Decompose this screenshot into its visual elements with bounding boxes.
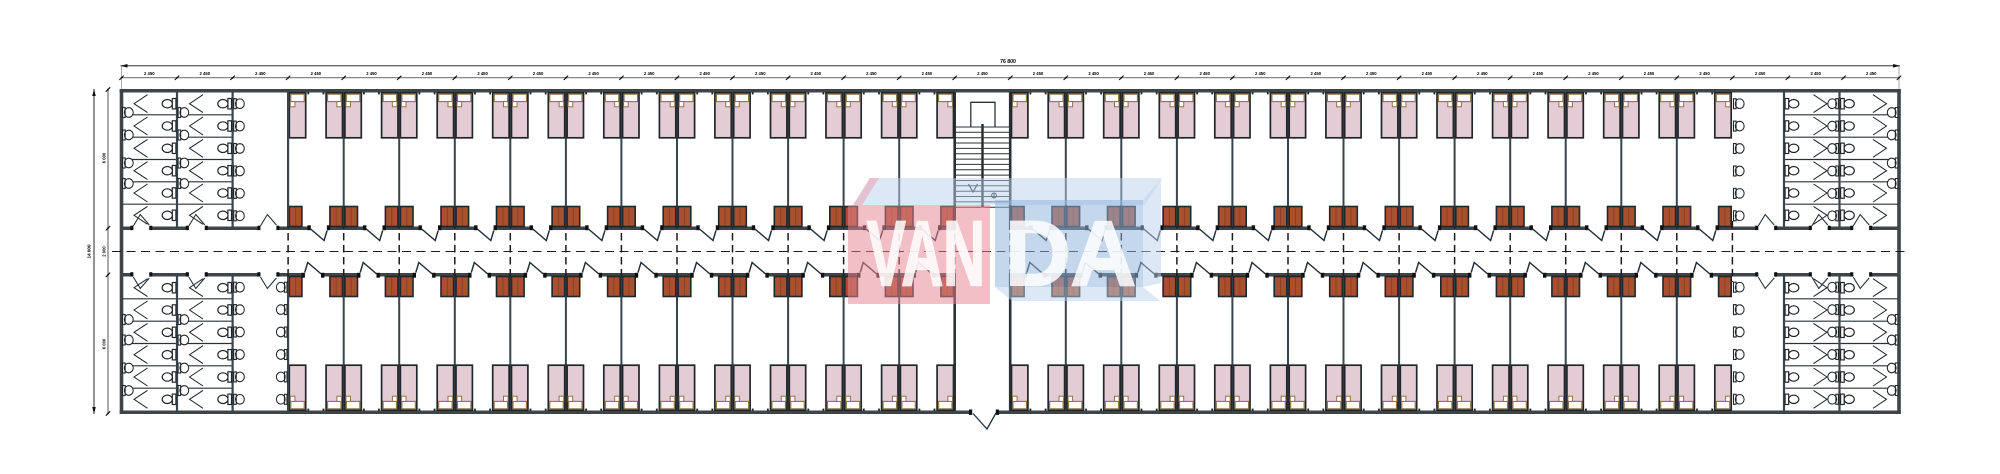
svg-text:2 450: 2 450 <box>1866 71 1877 76</box>
svg-text:2 450: 2 450 <box>144 71 155 76</box>
svg-text:2 450: 2 450 <box>1810 71 1821 76</box>
svg-text:2 450: 2 450 <box>1755 71 1766 76</box>
svg-text:DA: DA <box>1005 203 1136 305</box>
svg-text:14 000: 14 000 <box>87 244 92 258</box>
svg-text:2 450: 2 450 <box>588 71 599 76</box>
svg-text:2 450: 2 450 <box>811 71 822 76</box>
svg-text:2 450: 2 450 <box>200 71 211 76</box>
svg-text:2 450: 2 450 <box>1199 71 1210 76</box>
svg-text:2 450: 2 450 <box>699 71 710 76</box>
svg-text:6 000: 6 000 <box>102 338 107 349</box>
svg-text:2 450: 2 450 <box>422 71 433 76</box>
svg-text:2 450: 2 450 <box>922 71 933 76</box>
svg-text:2 450: 2 450 <box>1644 71 1655 76</box>
svg-text:2 450: 2 450 <box>1588 71 1599 76</box>
svg-text:2 450: 2 450 <box>1422 71 1433 76</box>
svg-text:2 450: 2 450 <box>366 71 377 76</box>
svg-text:VAN: VAN <box>867 203 985 305</box>
svg-text:2 450: 2 450 <box>755 71 766 76</box>
svg-text:2 450: 2 450 <box>1088 71 1099 76</box>
svg-text:2 000: 2 000 <box>102 246 107 257</box>
svg-text:76 800: 76 800 <box>1000 59 1016 65</box>
svg-text:2 450: 2 450 <box>866 71 877 76</box>
svg-text:2 450: 2 450 <box>644 71 655 76</box>
svg-text:2 450: 2 450 <box>1033 71 1044 76</box>
svg-text:2 450: 2 450 <box>477 71 488 76</box>
svg-text:2 450: 2 450 <box>1311 71 1322 76</box>
svg-text:2 450: 2 450 <box>1533 71 1544 76</box>
svg-text:2 450: 2 450 <box>311 71 322 76</box>
svg-text:2 450: 2 450 <box>977 71 988 76</box>
svg-text:2 450: 2 450 <box>1366 71 1377 76</box>
svg-text:2 450: 2 450 <box>1255 71 1266 76</box>
svg-text:2 450: 2 450 <box>1144 71 1155 76</box>
svg-text:2 450: 2 450 <box>1699 71 1710 76</box>
svg-text:2 450: 2 450 <box>533 71 544 76</box>
svg-text:6 000: 6 000 <box>102 152 107 163</box>
svg-text:2 450: 2 450 <box>255 71 266 76</box>
svg-text:2 450: 2 450 <box>1477 71 1488 76</box>
